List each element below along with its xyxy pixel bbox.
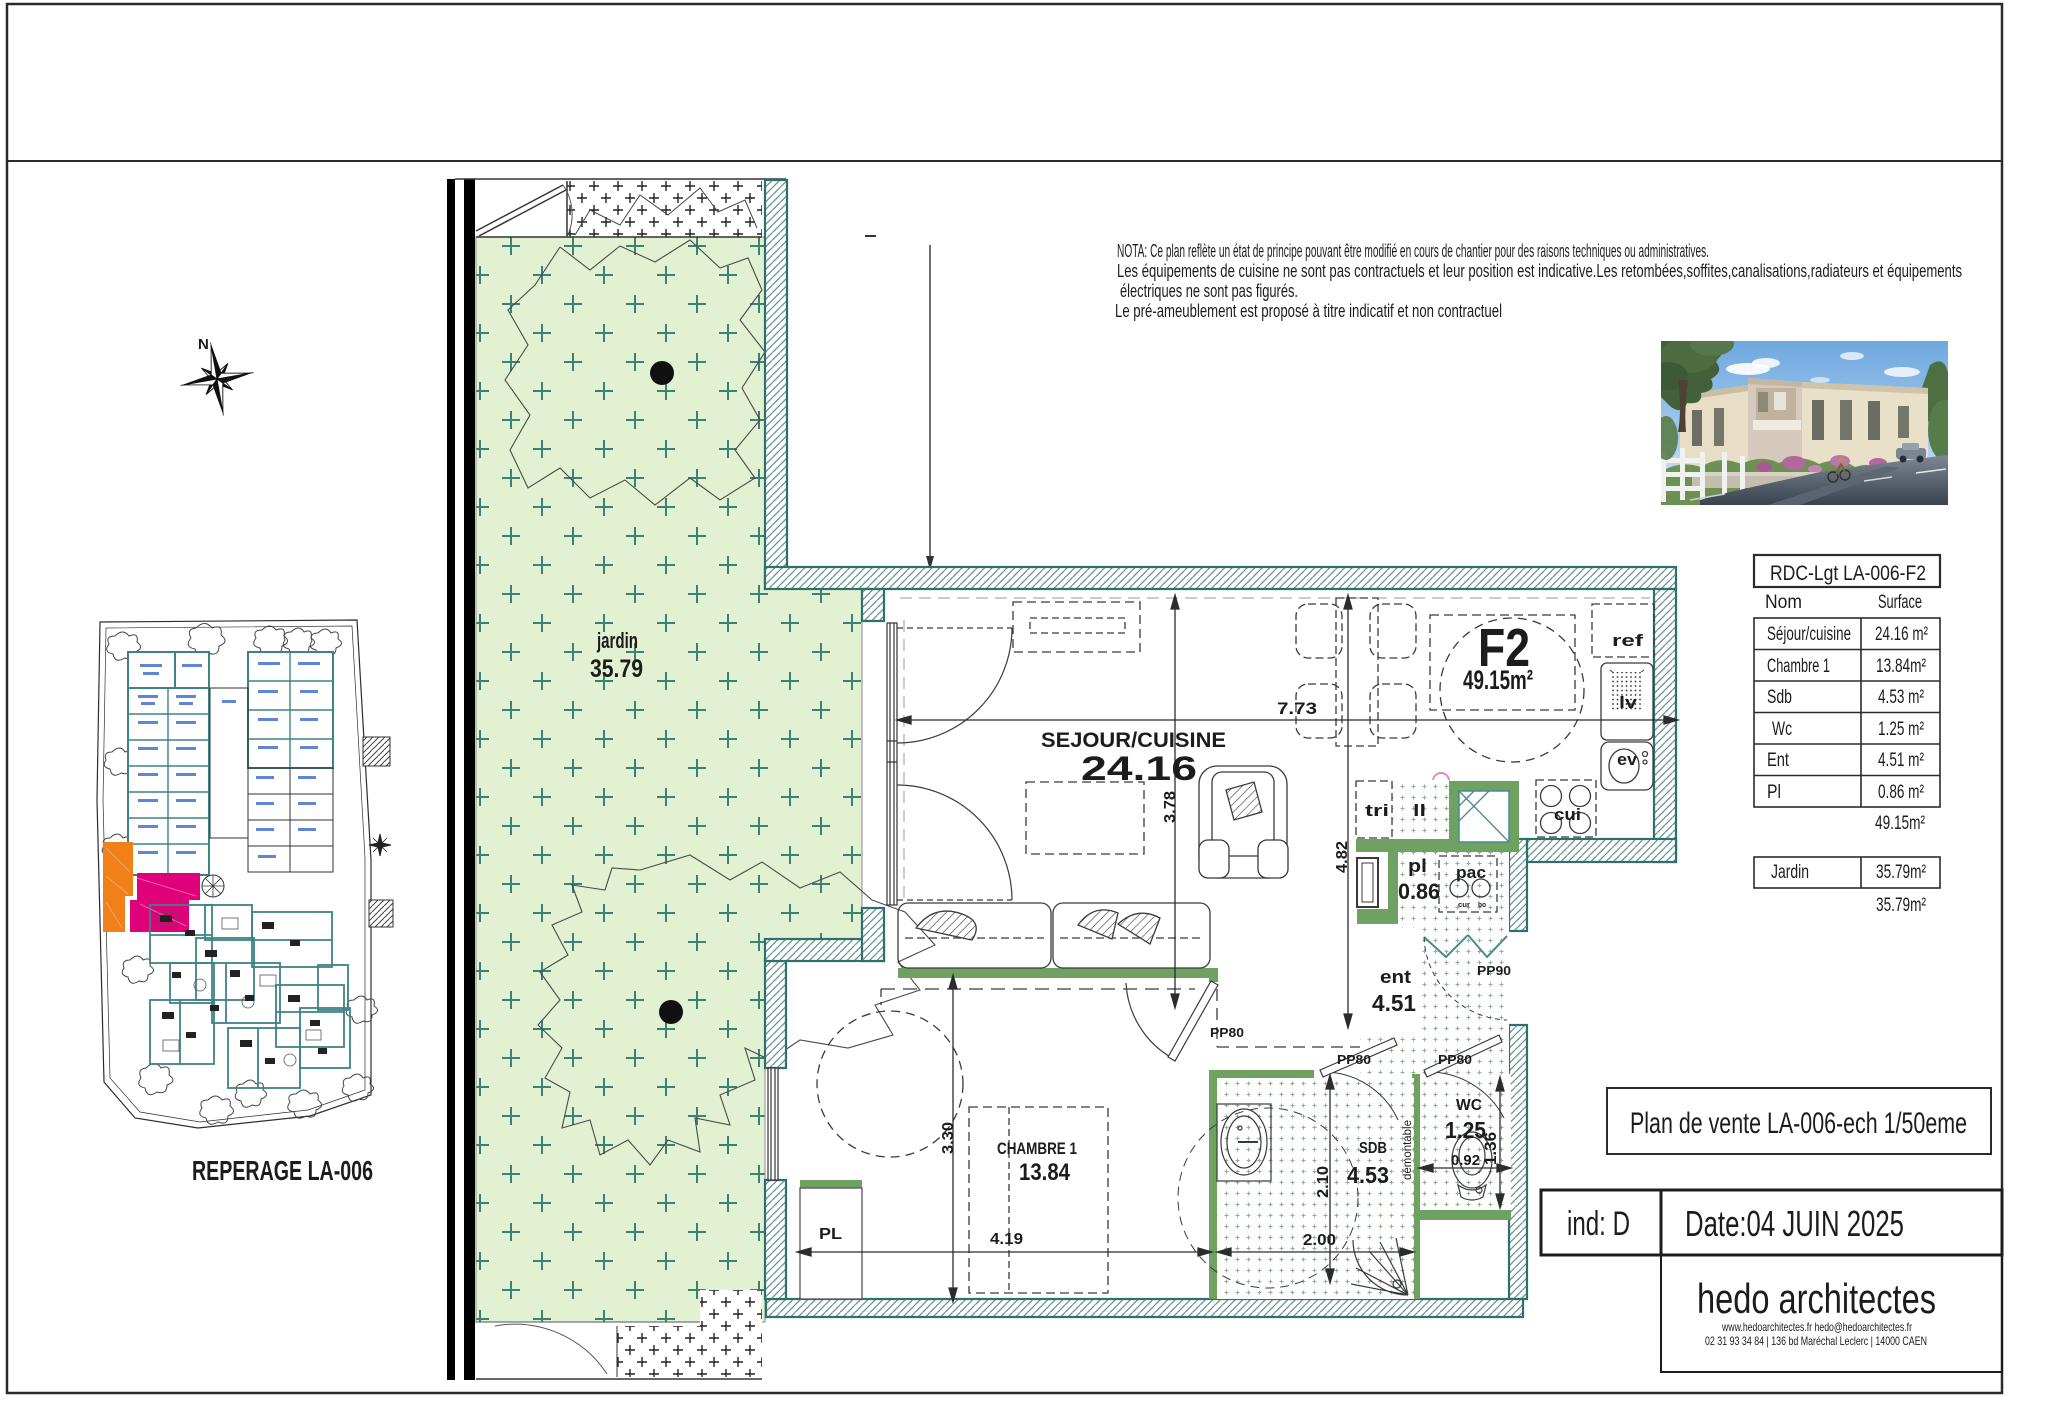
svg-text:4.53: 4.53 xyxy=(1347,1162,1389,1188)
svg-text:13.84m²: 13.84m² xyxy=(1876,656,1926,677)
svg-text:PL: PL xyxy=(819,1226,842,1243)
svg-text:PP80: PP80 xyxy=(1438,1052,1472,1067)
svg-text:4.51: 4.51 xyxy=(1372,990,1416,1016)
svg-text:2.00: 2.00 xyxy=(1303,1232,1336,1249)
svg-text:Nom: Nom xyxy=(1765,592,1802,613)
svg-text:Wc: Wc xyxy=(1772,719,1792,740)
svg-text:SEJOUR/CUISINE: SEJOUR/CUISINE xyxy=(1041,729,1226,752)
svg-text:Le pré-ameublement est proposé: Le pré-ameublement est proposé à titre i… xyxy=(1115,300,1502,321)
svg-text:PP90: PP90 xyxy=(1477,963,1511,978)
svg-text:NOTA: Ce plan reflète un état: NOTA: Ce plan reflète un état de princip… xyxy=(1117,240,1709,261)
svg-text:ref: ref xyxy=(1612,631,1643,650)
svg-text:lv: lv xyxy=(1619,693,1638,712)
svg-text:02 31 93 34 84 | 136 bd Mar: 02 31 93 34 84 | 136 bd Maréchal Leclerc… xyxy=(1705,1334,1927,1348)
svg-text:SDB: SDB xyxy=(1359,1140,1387,1157)
svg-text:35.79m²: 35.79m² xyxy=(1876,895,1926,916)
svg-text:2.10: 2.10 xyxy=(1315,1166,1332,1198)
svg-text:RDC-Lgt LA-006-F2: RDC-Lgt LA-006-F2 xyxy=(1770,562,1926,585)
svg-text:électriques ne sont pas figuré: électriques ne sont pas figurés. xyxy=(1120,280,1298,301)
svg-text:3.30: 3.30 xyxy=(940,1122,957,1154)
svg-text:35.79m²: 35.79m² xyxy=(1876,862,1926,883)
svg-text:Les équipements de cuisine ne: Les équipements de cuisine ne sont pas c… xyxy=(1117,260,1962,281)
svg-text:Date:04 JUIN 2025: Date:04 JUIN 2025 xyxy=(1685,1203,1904,1244)
svg-text:24.16: 24.16 xyxy=(1081,750,1197,788)
svg-text:tri: tri xyxy=(1365,801,1389,820)
svg-text:4.53 m²: 4.53 m² xyxy=(1878,687,1924,708)
svg-text:0.86: 0.86 xyxy=(1398,879,1440,904)
svg-text:Plan de vente LA-006-ech 1/50e: Plan de vente LA-006-ech 1/50eme xyxy=(1630,1107,1967,1140)
svg-text:Surface: Surface xyxy=(1878,592,1922,613)
svg-text:cur: cur xyxy=(1458,902,1470,909)
svg-text:7.73: 7.73 xyxy=(1277,699,1317,718)
svg-text:4.82: 4.82 xyxy=(1334,841,1351,873)
svg-text:Pl: Pl xyxy=(1767,782,1781,803)
svg-text:N: N xyxy=(198,336,209,353)
svg-text:PP80: PP80 xyxy=(1210,1025,1244,1040)
svg-text:1.25 m²: 1.25 m² xyxy=(1878,719,1924,740)
svg-text:1.36: 1.36 xyxy=(1481,1132,1500,1165)
svg-text:www.hedoarchitectes.fr hedo@h: www.hedoarchitectes.fr hedo@hedoarchitec… xyxy=(1721,1320,1912,1334)
svg-text:ll: ll xyxy=(1413,801,1426,820)
svg-text:Chambre 1: Chambre 1 xyxy=(1767,656,1830,677)
svg-text:0.86 m²: 0.86 m² xyxy=(1878,782,1924,803)
svg-text:13.84: 13.84 xyxy=(1019,1159,1071,1186)
svg-text:ev: ev xyxy=(1617,750,1638,769)
svg-text:0.92: 0.92 xyxy=(1451,1152,1480,1169)
svg-text:Ent: Ent xyxy=(1767,750,1790,771)
svg-text:CHAMBRE 1: CHAMBRE 1 xyxy=(997,1139,1077,1158)
svg-text:bo: bo xyxy=(1478,902,1486,909)
svg-text:pl: pl xyxy=(1408,856,1427,876)
svg-text:jardin: jardin xyxy=(596,628,638,653)
svg-text:24.16 m²: 24.16 m² xyxy=(1875,624,1928,645)
svg-text:démontable: démontable xyxy=(1400,1120,1414,1180)
svg-text:Séjour/cuisine: Séjour/cuisine xyxy=(1767,624,1851,645)
svg-text:REPERAGE LA-006: REPERAGE LA-006 xyxy=(192,1155,373,1186)
svg-text:1.25: 1.25 xyxy=(1445,1117,1486,1143)
svg-text:pac: pac xyxy=(1456,863,1486,882)
svg-text:ind: D: ind: D xyxy=(1567,1205,1630,1243)
svg-text:Jardin: Jardin xyxy=(1771,862,1809,883)
svg-text:49.15m²: 49.15m² xyxy=(1463,665,1533,695)
svg-text:49.15m²: 49.15m² xyxy=(1875,813,1925,834)
svg-text:cui: cui xyxy=(1554,805,1581,824)
svg-text:4.51 m²: 4.51 m² xyxy=(1878,750,1924,771)
svg-text:3.78: 3.78 xyxy=(1162,791,1179,823)
svg-text:WC: WC xyxy=(1456,1097,1482,1114)
svg-text:35.79: 35.79 xyxy=(590,655,643,683)
svg-text:ent: ent xyxy=(1380,967,1411,987)
svg-text:Sdb: Sdb xyxy=(1767,687,1792,708)
svg-text:PP80: PP80 xyxy=(1337,1052,1371,1067)
svg-text:4.19: 4.19 xyxy=(990,1231,1023,1248)
svg-text:hedo architectes: hedo architectes xyxy=(1697,1275,1936,1322)
